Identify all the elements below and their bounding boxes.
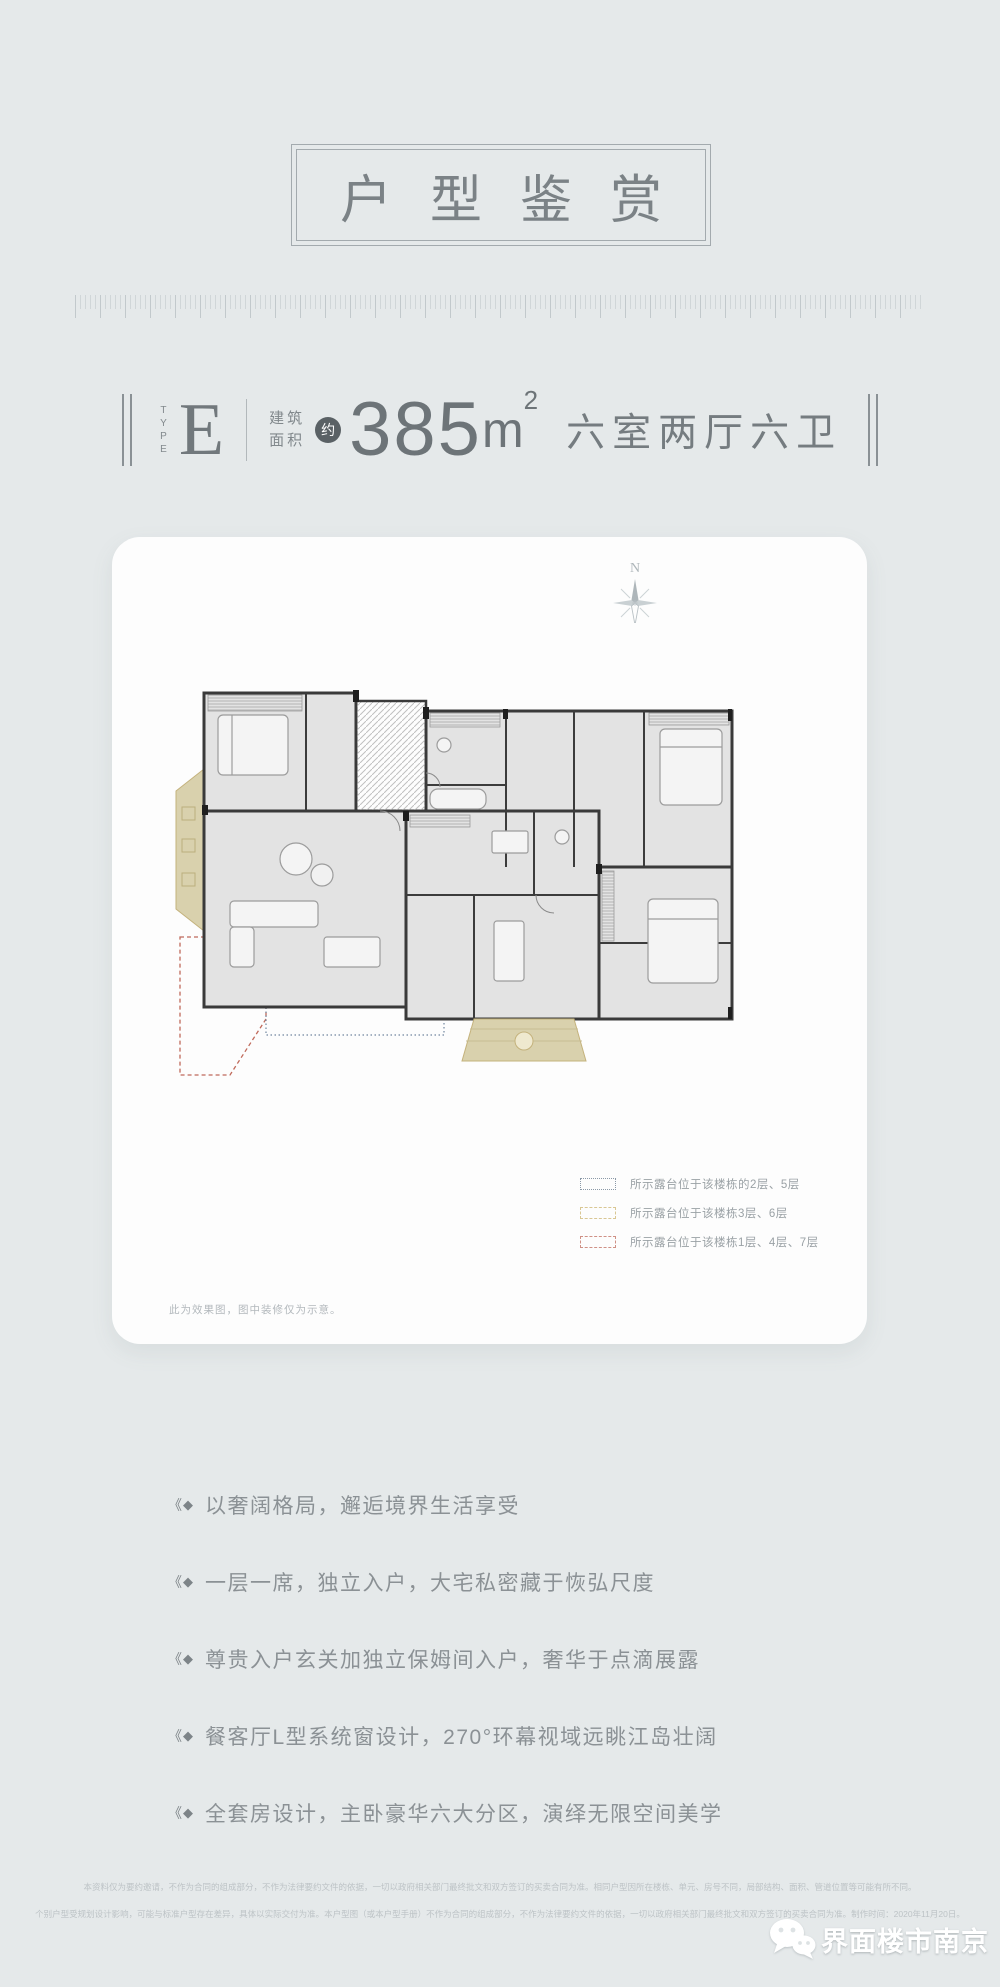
- type-area-row: TYPE E 建筑 面积 约 385 m 2 六室两厅六卫: [0, 392, 1000, 468]
- feature-list: 《◆ 以奢阔格局，邂逅境界生活享受 《◆ 一层一席，独立入户，大宅私密藏于恢弘尺…: [168, 1492, 723, 1877]
- stair-core: [356, 701, 426, 811]
- feature-item: 《◆ 餐客厅L型系统窗设计，270°环幕视域远眺江岛壮阔: [168, 1723, 723, 1749]
- diamond-bullet-icon: 《◆: [168, 1495, 193, 1515]
- area-unit-exponent: 2: [524, 385, 538, 416]
- type-letter: E: [179, 393, 224, 467]
- terrace-tan-bottom: [462, 1019, 586, 1061]
- diamond-bullet-icon: 《◆: [168, 1649, 193, 1669]
- terrace-tan-left: [176, 769, 204, 931]
- diamond-bullet-icon: 《◆: [168, 1572, 193, 1592]
- ruler-decoration: [75, 295, 925, 318]
- compass-north-label: N: [610, 561, 660, 577]
- double-bar-right: [868, 394, 878, 466]
- floorplan-card: N: [112, 537, 867, 1344]
- area-label: 建筑 面积: [269, 408, 305, 453]
- compass: N: [610, 561, 660, 628]
- watermark: 界面楼市南京: [768, 1918, 989, 1960]
- terrace-legend: 所示露台位于该楼栋的2层、5层 所示露台位于该楼栋3层、6层 所示露台位于该楼栋…: [580, 1169, 819, 1256]
- legend-row: 所示露台位于该楼栋3层、6层: [580, 1198, 819, 1227]
- render-note: 此为效果图，图中装修仅为示意。: [169, 1302, 342, 1317]
- feature-item: 《◆ 尊贵入户玄关加独立保姆间入户，奢华于点滴展露: [168, 1646, 723, 1672]
- approx-badge: 约: [315, 417, 341, 443]
- poster-page: 户型鉴赏 TYPE E 建筑 面积 约 385 m 2 六室两厅六卫 N: [0, 0, 1000, 1987]
- area-unit: m: [482, 405, 524, 455]
- legend-swatch-red: [580, 1236, 616, 1248]
- area-value: 385: [349, 392, 482, 468]
- double-bar-left: [122, 394, 132, 466]
- diamond-bullet-icon: 《◆: [168, 1803, 193, 1823]
- legend-swatch-tan: [580, 1207, 616, 1219]
- legend-swatch-blue: [580, 1178, 616, 1190]
- compass-rose-icon: [613, 579, 657, 623]
- wechat-icon: [768, 1918, 816, 1960]
- rooms-text: 六室两厅六卫: [566, 402, 842, 458]
- watermark-text: 界面楼市南京: [821, 1920, 989, 1959]
- floor-plan: [174, 685, 740, 1077]
- legend-row: 所示露台位于该楼栋的2层、5层: [580, 1169, 819, 1198]
- title-box-inner: 户型鉴赏: [296, 149, 706, 241]
- feature-item: 《◆ 以奢阔格局，邂逅境界生活享受: [168, 1492, 723, 1518]
- feature-item: 《◆ 一层一席，独立入户，大宅私密藏于恢弘尺度: [168, 1569, 723, 1595]
- legend-row: 所示露台位于该楼栋1层、4层、7层: [580, 1227, 819, 1256]
- page-title: 户型鉴赏: [302, 158, 700, 233]
- diamond-bullet-icon: 《◆: [168, 1726, 193, 1746]
- disclaimer-line-1: 本资料仅为要约邀请，不作为合同的组成部分，不作为法律要约文件的依据，一切以政府相…: [0, 1874, 1000, 1901]
- type-divider: [246, 399, 247, 461]
- title-box: 户型鉴赏: [291, 144, 711, 246]
- type-word-vertical: TYPE: [158, 404, 169, 456]
- feature-item: 《◆ 全套房设计，主卧豪华六大分区，演绎无限空间美学: [168, 1800, 723, 1826]
